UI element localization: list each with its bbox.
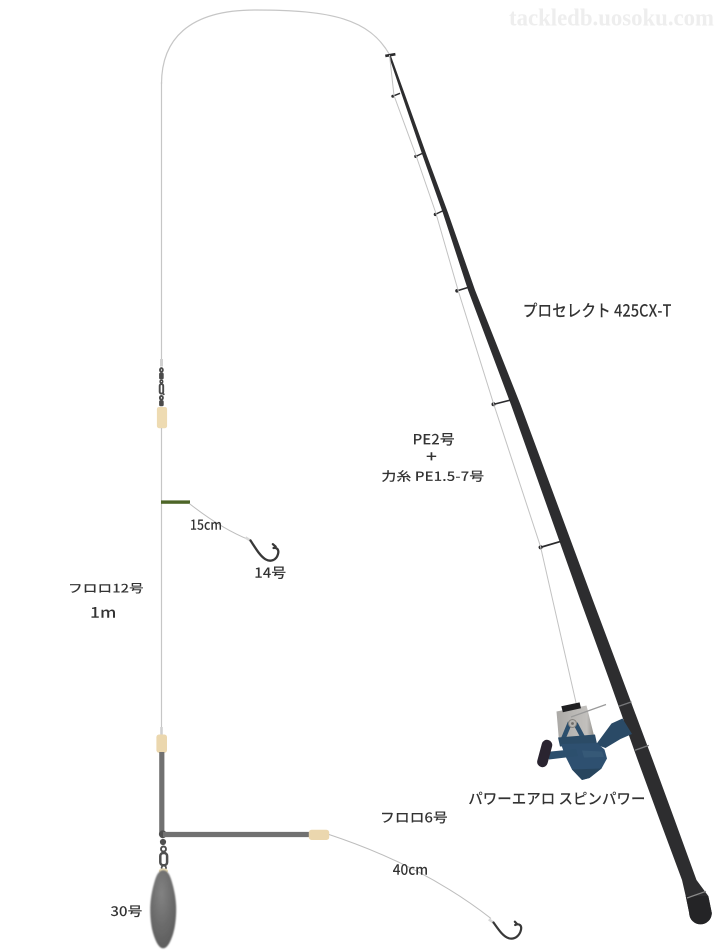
svg-text:tackledb.uosoku.com: tackledb.uosoku.com [509, 6, 714, 32]
